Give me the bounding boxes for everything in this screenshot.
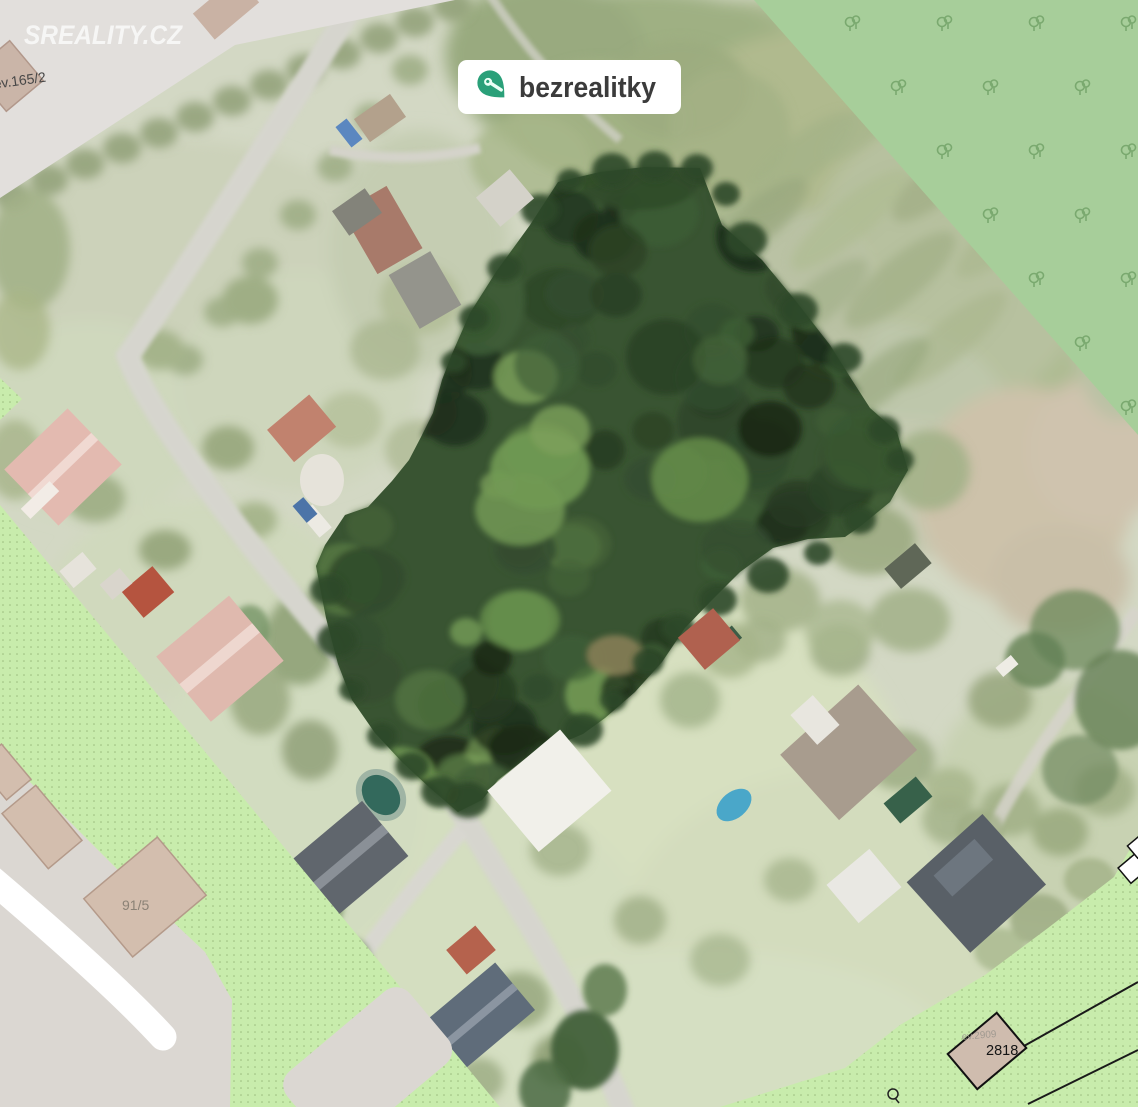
svg-text:2818: 2818 bbox=[986, 1043, 1018, 1059]
svg-text:91/5: 91/5 bbox=[122, 897, 149, 913]
svg-text:bezrealitky: bezrealitky bbox=[519, 72, 656, 104]
svg-text:SREALITY.CZ: SREALITY.CZ bbox=[24, 20, 183, 50]
